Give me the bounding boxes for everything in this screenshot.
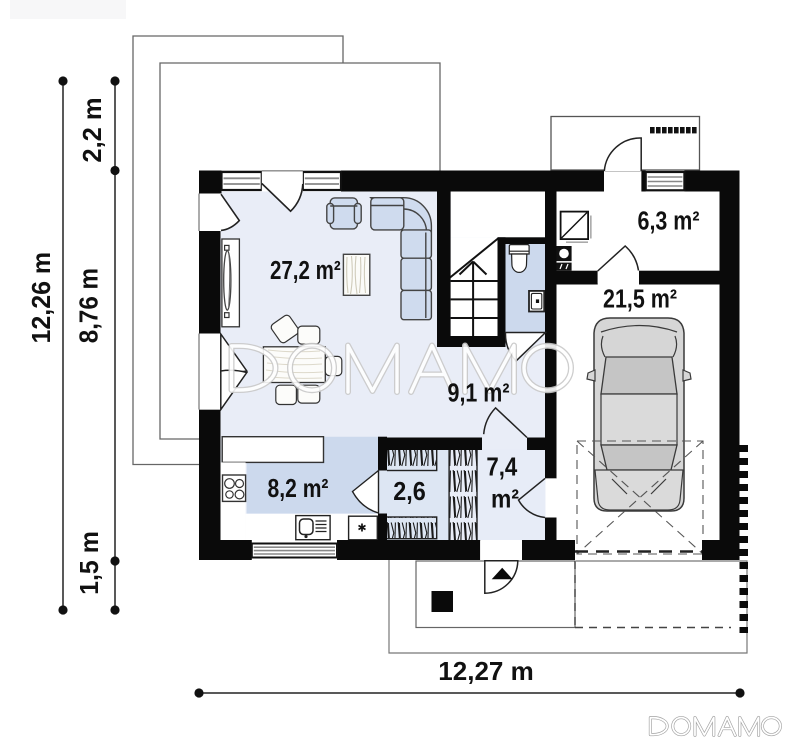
svg-text:12,26 m: 12,26 m bbox=[28, 252, 57, 344]
svg-text:2,2 m: 2,2 m bbox=[79, 97, 107, 162]
svg-text:27,2 m²: 27,2 m² bbox=[270, 256, 341, 285]
svg-text:8,2 m²: 8,2 m² bbox=[268, 475, 329, 504]
svg-text:7,4: 7,4 bbox=[486, 453, 517, 482]
svg-text:9,1 m²: 9,1 m² bbox=[448, 379, 510, 408]
svg-text:2,6: 2,6 bbox=[393, 478, 426, 506]
svg-text:1,5 m: 1,5 m bbox=[76, 531, 105, 595]
svg-text:6,3 m²: 6,3 m² bbox=[638, 207, 700, 236]
svg-text:8,76 m: 8,76 m bbox=[75, 268, 104, 343]
svg-text:21,5 m²: 21,5 m² bbox=[603, 285, 677, 314]
svg-text:m²: m² bbox=[491, 485, 519, 514]
svg-text:12,27 m: 12,27 m bbox=[438, 656, 533, 686]
